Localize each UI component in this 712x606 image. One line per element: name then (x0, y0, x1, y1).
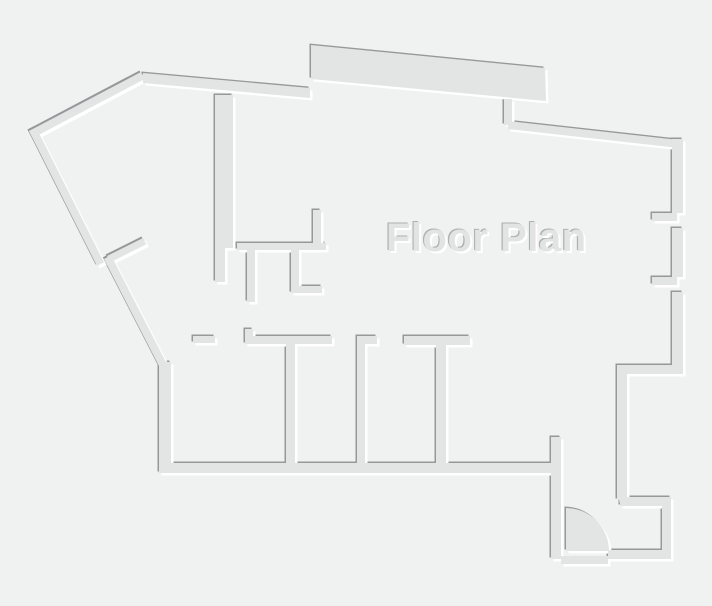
floor-plan-figure: Floor Plan Floor Plan Floor Plan (0, 0, 712, 606)
threshold-fill-layer (561, 556, 608, 564)
title-text: Floor Plan (386, 216, 587, 260)
floor-plan-canvas: Floor Plan Floor Plan Floor Plan (0, 0, 712, 606)
